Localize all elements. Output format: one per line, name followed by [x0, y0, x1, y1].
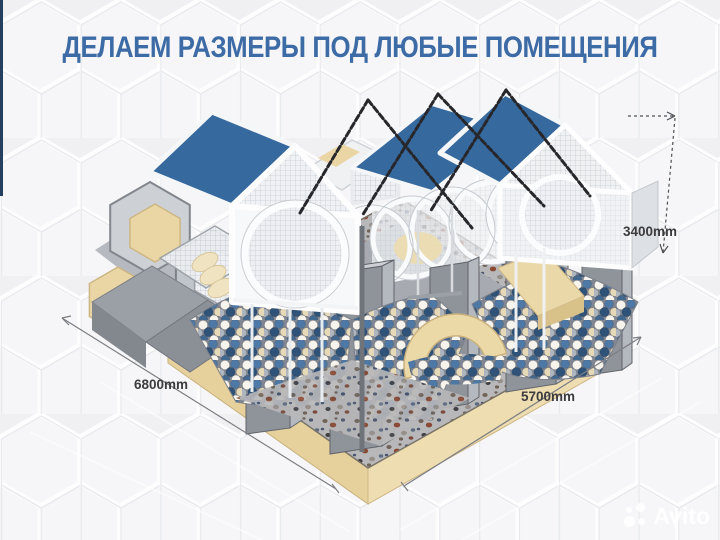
playground-3d-render: 6800mm 5700mm 3400mm [0, 0, 720, 540]
height-dimension-label: 3400mm [623, 224, 677, 239]
width-dimension-label: 6800mm [134, 377, 188, 392]
depth-dimension-label: 5700mm [521, 389, 575, 404]
avito-logo-icon [624, 503, 649, 530]
listing-image: ДЕЛАЕМ РАЗМЕРЫ ПОД ЛЮБЫЕ ПОМЕЩЕНИЯ [0, 0, 720, 540]
watermark: Avito [624, 503, 710, 530]
watermark-brand: Avito [653, 505, 710, 528]
